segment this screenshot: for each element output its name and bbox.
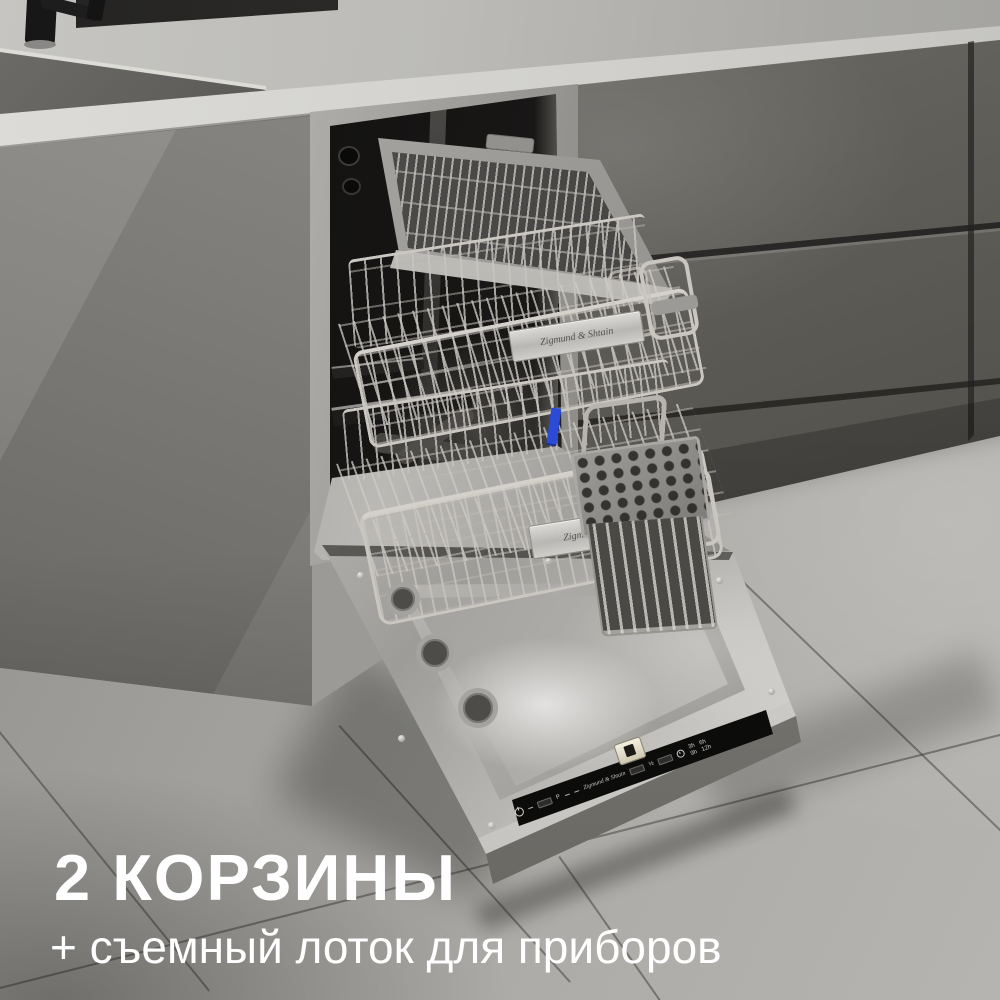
faucet-base <box>24 40 56 49</box>
cutlery-basket-slats <box>586 516 718 637</box>
half-load-button <box>629 763 645 775</box>
indicator-icon <box>574 790 579 793</box>
control-panel-brand: Zigmund & Shtain <box>583 771 627 792</box>
clock-icon <box>676 748 686 758</box>
delay-timer-labels: 3h 6h 9h 12h <box>687 737 712 757</box>
delay-button <box>657 753 673 765</box>
product-photo-dishwasher: P Zigmund & Shtain ½ 3h 6h 9h 12h Zigmun… <box>0 0 1000 1000</box>
caption-title: 2 КОРЗИНЫ <box>54 840 457 915</box>
caption-subtitle: + съемный лоток для приборов <box>50 920 722 974</box>
indicator-icon <box>565 793 570 796</box>
screw <box>488 822 495 829</box>
cavity-port <box>338 146 360 166</box>
half-load-label: ½ <box>648 760 655 767</box>
program-label: P <box>555 794 561 801</box>
basket-wheel <box>416 634 454 672</box>
basket-wheel <box>386 582 420 616</box>
delay-label: 9h <box>690 749 698 757</box>
program-button <box>536 797 552 809</box>
indicator-icon <box>528 806 533 809</box>
screw <box>357 572 364 579</box>
screw <box>768 688 775 695</box>
basket-wheel <box>458 688 498 728</box>
screw <box>398 735 405 742</box>
power-icon <box>513 806 525 818</box>
cavity-port <box>342 178 361 195</box>
